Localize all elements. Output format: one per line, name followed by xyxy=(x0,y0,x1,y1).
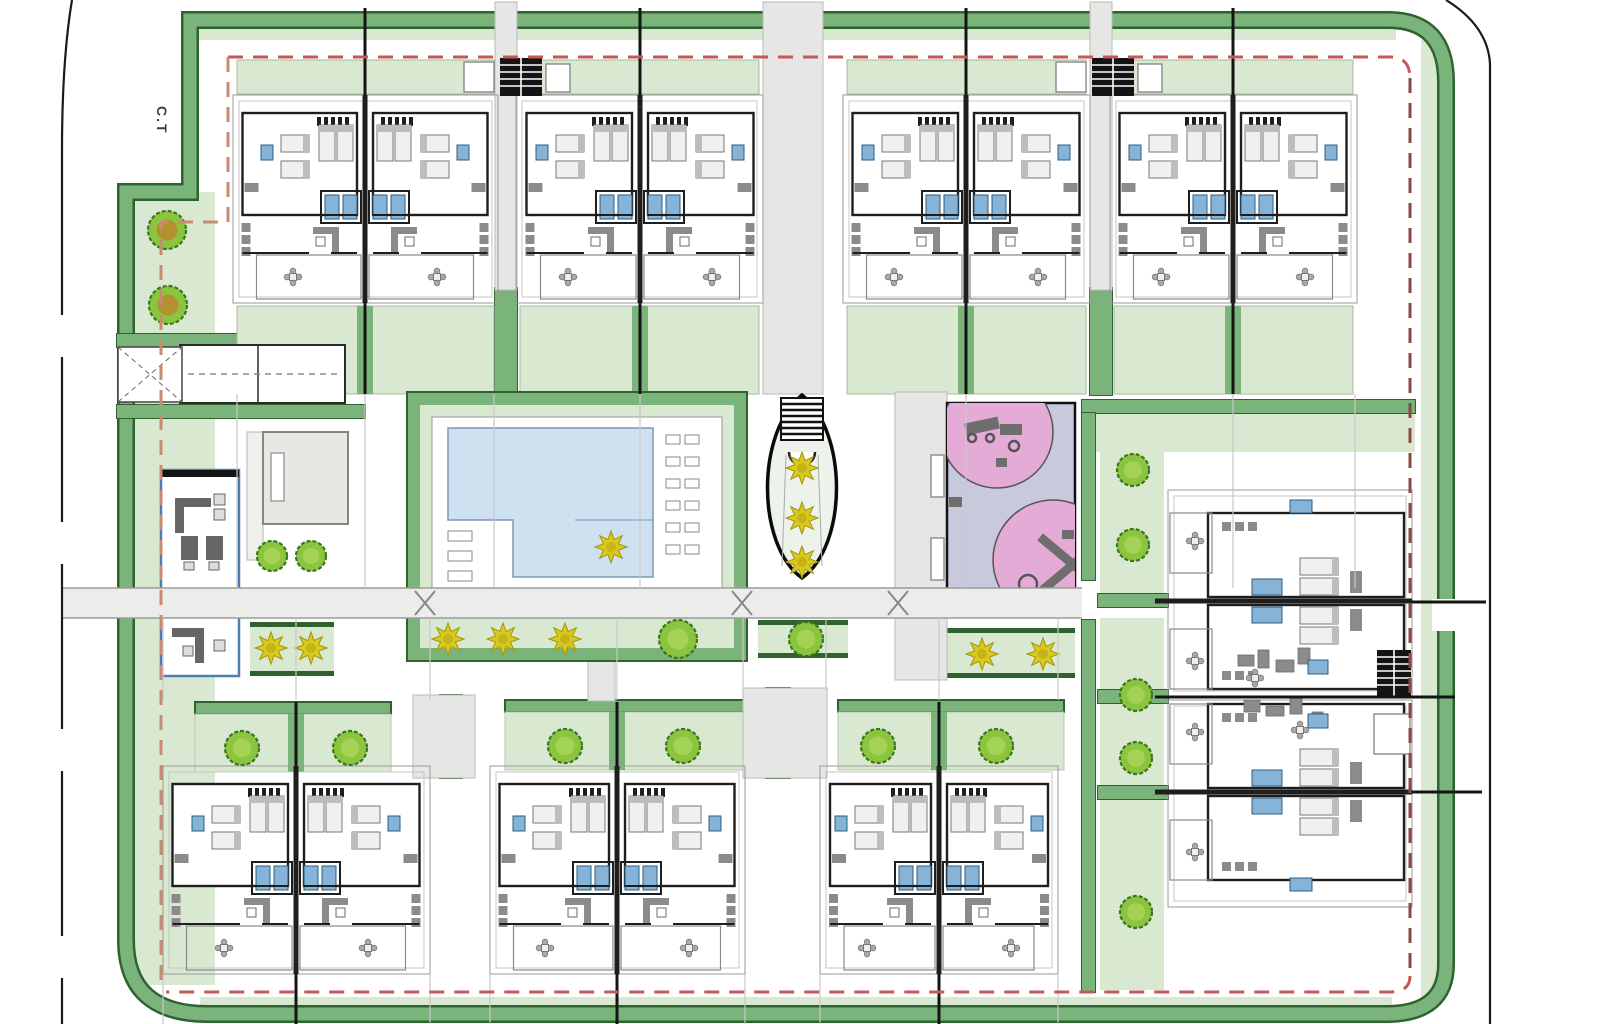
site-plan-canvas xyxy=(0,0,1600,1024)
site-plan-page: C.T xyxy=(0,0,1600,1024)
pool-area xyxy=(406,391,748,662)
entrance-gate xyxy=(118,345,345,403)
corner-label: C.T xyxy=(154,106,170,135)
office-building xyxy=(161,470,239,676)
